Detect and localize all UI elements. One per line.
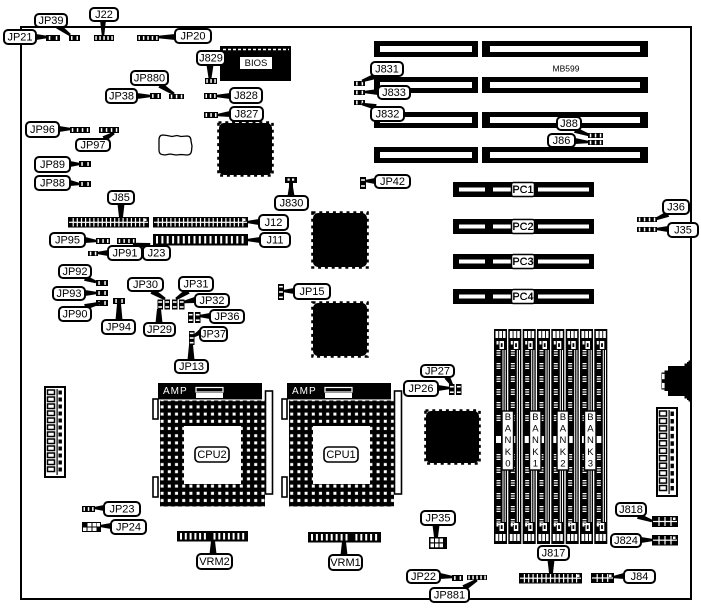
svg-text:JP90: JP90 [62,309,87,321]
svg-text:J86: J86 [553,135,571,147]
svg-text:MB599: MB599 [553,64,580,74]
svg-text:J36: J36 [667,202,685,214]
svg-text:JP22: JP22 [411,571,436,583]
svg-text:JP91: JP91 [112,248,137,260]
svg-text:AMP: AMP [292,386,317,397]
svg-text:K: K [560,447,567,458]
svg-text:A: A [587,424,594,435]
svg-text:A: A [505,424,512,435]
svg-text:BIOS: BIOS [245,58,268,69]
svg-text:0: 0 [505,458,510,469]
svg-text:J23: J23 [148,248,166,260]
svg-text:JP95: JP95 [55,235,80,247]
svg-text:JP30: JP30 [133,279,158,291]
svg-text:JP42: JP42 [380,176,405,188]
svg-text:J817: J817 [542,548,566,560]
svg-text:J831: J831 [375,64,399,76]
svg-text:JP38: JP38 [109,91,134,103]
svg-text:J824: J824 [614,535,638,547]
svg-text:N: N [532,435,539,446]
svg-text:CPU2: CPU2 [197,449,226,461]
svg-text:K: K [587,447,594,458]
svg-text:JP37: JP37 [201,329,226,341]
svg-text:JP26: JP26 [408,383,433,395]
svg-text:J829: J829 [199,53,223,65]
svg-text:J85: J85 [112,192,130,204]
svg-text:JP881: JP881 [434,590,465,602]
svg-text:JP23: JP23 [109,504,134,516]
svg-text:JP13: JP13 [179,361,204,373]
svg-text:J828: J828 [234,90,258,102]
svg-text:B: B [505,412,511,423]
svg-text:JP92: JP92 [62,266,87,278]
svg-text:J22: J22 [95,9,113,21]
svg-text:J832: J832 [376,109,400,121]
svg-text:B: B [560,412,566,423]
svg-text:J818: J818 [619,504,643,516]
svg-text:JP21: JP21 [7,32,32,44]
svg-text:J35: J35 [674,225,692,237]
svg-text:JP35: JP35 [425,513,450,525]
svg-text:J84: J84 [631,571,649,583]
svg-text:CPU1: CPU1 [326,449,355,461]
svg-text:K: K [505,447,512,458]
svg-text:3: 3 [588,458,593,469]
svg-text:JP32: JP32 [199,295,224,307]
svg-text:JP96: JP96 [30,124,55,136]
svg-text:J88: J88 [560,118,578,130]
svg-text:JP880: JP880 [134,73,165,85]
svg-text:PC4: PC4 [513,291,534,303]
svg-text:JP36: JP36 [214,311,239,323]
svg-text:N: N [587,435,594,446]
svg-text:N: N [559,435,566,446]
svg-text:JP93: JP93 [56,288,81,300]
svg-text:VRM1: VRM1 [330,557,361,569]
svg-text:PC2: PC2 [513,221,534,233]
svg-text:JP39: JP39 [38,15,63,27]
svg-text:J827: J827 [235,109,259,121]
svg-text:AMP: AMP [163,386,188,397]
svg-text:PC3: PC3 [513,256,534,268]
svg-text:1: 1 [533,458,538,469]
svg-text:JP89: JP89 [40,159,65,171]
svg-text:A: A [560,424,567,435]
svg-text:JP15: JP15 [299,286,324,298]
svg-text:JP88: JP88 [40,178,65,190]
svg-text:B: B [587,412,593,423]
svg-text:J11: J11 [267,235,284,247]
svg-text:JP24: JP24 [116,522,141,534]
svg-text:J833: J833 [382,87,406,99]
svg-text:A: A [532,424,539,435]
svg-text:2: 2 [560,458,565,469]
svg-text:JP31: JP31 [183,279,208,291]
svg-text:JP97: JP97 [80,140,105,152]
svg-text:B: B [532,412,538,423]
svg-text:J830: J830 [280,198,304,210]
svg-text:JP29: JP29 [147,324,172,336]
svg-text:JP20: JP20 [180,31,205,43]
svg-text:N: N [504,435,511,446]
svg-text:K: K [532,447,539,458]
svg-text:PC1: PC1 [513,184,534,196]
svg-text:JP94: JP94 [106,322,131,334]
svg-text:JP27: JP27 [425,366,450,378]
svg-text:VRM2: VRM2 [199,556,230,568]
svg-text:J12: J12 [265,217,283,229]
